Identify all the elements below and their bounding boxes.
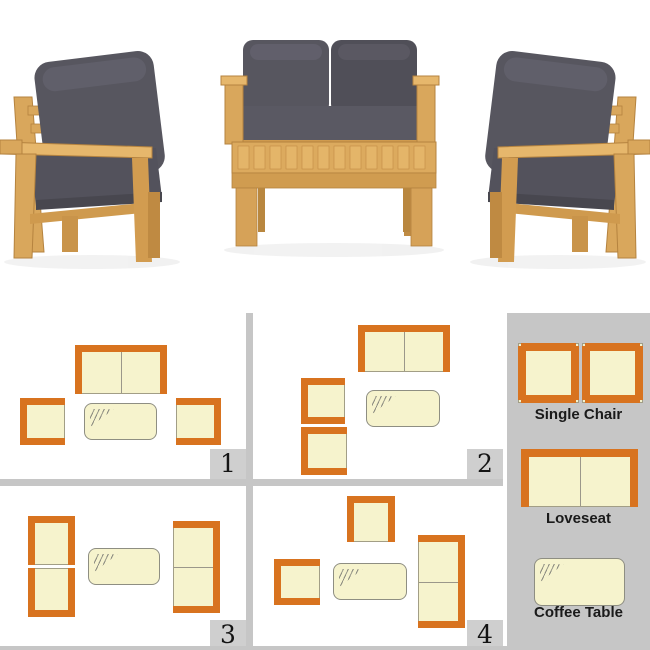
frame-bar-bottom <box>274 598 320 605</box>
single-chair-icon <box>518 343 579 403</box>
frame-bar-left <box>28 516 35 565</box>
horizontal-divider <box>0 479 503 486</box>
frame-bar-right <box>68 568 75 617</box>
panel-number-badge: 1 <box>210 449 246 479</box>
frame-bar-bottom <box>418 621 465 628</box>
single-chair-icon <box>28 568 75 617</box>
frame-bar-right <box>388 496 395 542</box>
frame-bar-right <box>571 346 579 400</box>
coffee-table-icon <box>534 558 625 606</box>
legend-label-loveseat: Loveseat <box>507 510 650 527</box>
frame-bar-top <box>521 343 576 351</box>
frame-bar-bottom <box>521 395 576 403</box>
cushion-divider <box>419 582 458 583</box>
frame-bar-top <box>585 343 640 351</box>
frame-bar-left <box>358 325 365 372</box>
frame-bar-left <box>518 346 526 400</box>
cushion-divider <box>174 567 213 568</box>
frame-bar-right <box>160 345 167 394</box>
frame-bar-left <box>75 345 82 394</box>
coffee-table-icon <box>84 403 157 440</box>
cushion-divider <box>404 332 405 371</box>
single-chair-icon <box>301 378 345 424</box>
glass-reflection <box>540 564 564 582</box>
coffee-table-icon <box>88 548 160 585</box>
loveseat-icon <box>358 325 450 372</box>
frame-bar-bottom <box>20 438 65 445</box>
frame-bar-bottom <box>301 417 345 424</box>
frame-bar-left <box>347 496 354 542</box>
product-collage: 1 2 3 4 Single Chair Loveseat Coffee Tab… <box>0 0 650 650</box>
glass-reflection <box>339 569 363 587</box>
glass-reflection <box>94 554 118 572</box>
single-chair-icon <box>28 516 75 565</box>
layout-panel-2: 2 <box>253 313 503 479</box>
cushion-divider <box>121 352 122 393</box>
frame-bar-top <box>358 325 450 332</box>
single-chair-icon <box>274 559 320 605</box>
frame-bar-right <box>630 449 638 507</box>
panel-number-badge: 2 <box>467 449 503 479</box>
single-chair-icon <box>582 343 643 403</box>
layout-panel-1: 1 <box>0 313 246 479</box>
legend-label-coffee-table: Coffee Table <box>507 604 650 621</box>
layout-panel-4: 4 <box>253 486 503 650</box>
frame-bar-right <box>635 346 643 400</box>
frame-bar-bottom <box>176 438 221 445</box>
frame-bar-left <box>582 346 590 400</box>
coffee-table-icon <box>366 390 440 427</box>
frame-bar-right <box>213 521 220 613</box>
loveseat-icon <box>75 345 167 394</box>
layout-panel-3: 3 <box>0 486 246 650</box>
single-chair-icon <box>176 398 221 445</box>
frame-bar-top <box>521 449 638 457</box>
coffee-table-icon <box>333 563 407 600</box>
layout-diagrams: 1 2 3 4 Single Chair Loveseat Coffee Tab… <box>0 0 650 650</box>
single-chair-icon <box>20 398 65 445</box>
single-chair-icon <box>347 496 395 542</box>
frame-bar-right <box>458 535 465 628</box>
frame-bar-bottom <box>173 606 220 613</box>
legend-label-single-chair: Single Chair <box>507 406 650 423</box>
glass-reflection <box>372 396 396 414</box>
frame-bar-bottom <box>301 468 347 475</box>
loveseat-icon <box>173 521 220 613</box>
legend-panel: Single Chair Loveseat Coffee Table <box>507 313 650 650</box>
frame-bar-top <box>75 345 167 352</box>
frame-bar-left <box>521 449 529 507</box>
frame-bar-right <box>443 325 450 372</box>
cushion-divider <box>580 457 581 506</box>
glass-reflection <box>90 409 114 427</box>
frame-bar-bottom <box>585 395 640 403</box>
single-chair-icon <box>301 427 347 475</box>
loveseat-icon <box>418 535 465 628</box>
frame-bar-right <box>68 516 75 565</box>
loveseat-icon <box>521 449 638 507</box>
